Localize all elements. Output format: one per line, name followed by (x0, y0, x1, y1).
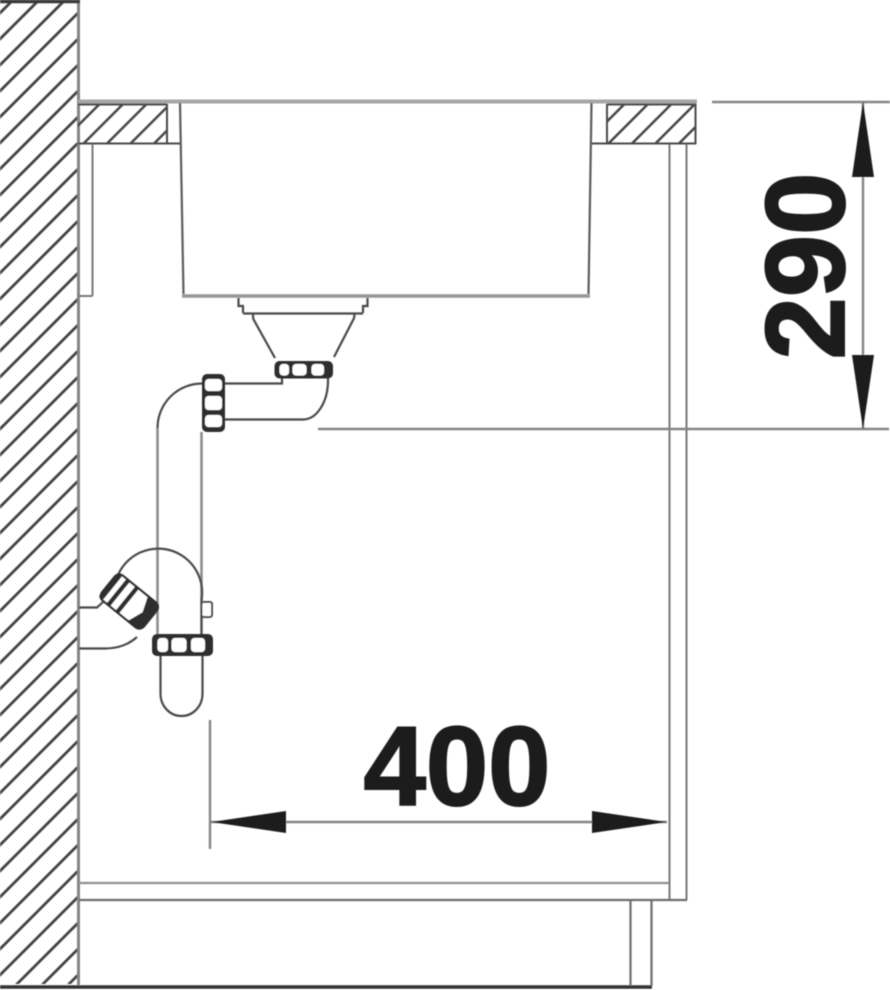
svg-text:290: 290 (743, 173, 868, 360)
svg-text:400: 400 (364, 704, 551, 829)
